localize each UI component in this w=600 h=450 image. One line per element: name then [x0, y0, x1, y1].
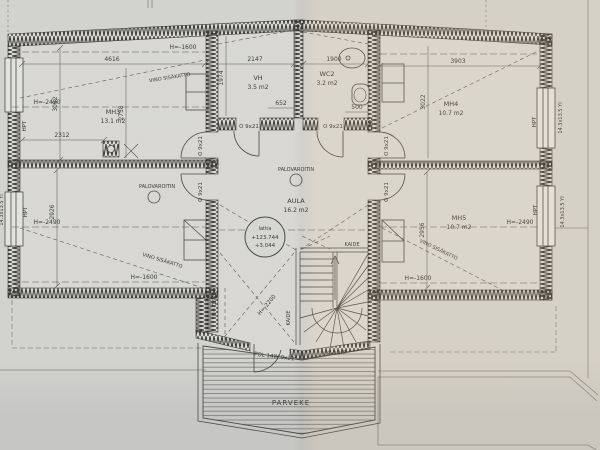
door-size-wc2: O 9x21 — [323, 124, 343, 130]
height-mh5-bottom: H=-1600 — [405, 275, 432, 282]
wc-toilet — [352, 84, 369, 105]
door-size-vh: O 9x21 — [239, 124, 259, 130]
window-spec-mh5: 14.3x13.5 YI — [560, 196, 566, 227]
window-spec-mh4: 14.3x13.5 YI — [558, 102, 564, 133]
note-hpt-mh5: HPT — [533, 204, 539, 215]
plan-floor-area — [8, 20, 552, 360]
height-mh3-top: H=-1600 — [170, 44, 197, 51]
room-area-mh4: 10.7 m2 — [439, 110, 464, 117]
window-lower-left — [5, 192, 23, 246]
floor-plan-svg: lattia +123.744 +3.044 MH3 13.1 m2 VH 3.… — [0, 0, 600, 450]
room-area-mh5: 10.7 m2 — [447, 224, 472, 231]
dim-mh5-depth: 2956 — [419, 222, 426, 237]
dim-mh4-depth: 3022 — [420, 94, 427, 109]
note-hpt-lower-left: HPT — [23, 206, 29, 217]
room-label-aula: AULA — [287, 197, 305, 205]
height-lower-left: H=-2490 — [34, 219, 61, 226]
height-landing: H=-1620 — [212, 291, 218, 316]
dim-lower-left-depth: 2926 — [49, 204, 56, 219]
room-label-wc2: WC2 — [319, 70, 334, 78]
door-size-lower-left: O 9x21 — [198, 182, 204, 202]
note-railing-top: KAIDE — [344, 242, 359, 248]
note-smoke-aula: PALOVAROITIN — [278, 167, 315, 173]
room-area-aula: 16.2 m2 — [284, 207, 309, 214]
wc-sink — [339, 48, 365, 68]
height-mh3: H=-2490 — [34, 99, 61, 106]
window-mh5 — [537, 186, 555, 246]
level-marker: lattia +123.744 +3.044 — [245, 217, 285, 257]
dim-mh3-diag: 2758 — [118, 105, 125, 120]
room-label-vh: VH — [253, 74, 262, 82]
scanned-floor-plan-photo: lattia +123.744 +3.044 MH3 13.1 m2 VH 3.… — [0, 0, 600, 450]
window-mh4 — [537, 88, 555, 148]
dim-wc2-offset: 500 — [351, 104, 363, 111]
room-area-wc2: 3.2 m2 — [316, 80, 337, 87]
dim-vh-depth: 1974 — [218, 70, 225, 85]
door-size-mh5: O 9x21 — [384, 182, 390, 202]
dim-mh4-width: 3903 — [450, 58, 465, 65]
room-label-mh4: MH4 — [444, 100, 459, 108]
note-smoke-lower-left: PALOVAROITIN — [139, 184, 176, 190]
room-label-parveke: PARVEKE — [272, 399, 310, 407]
window-spec-left: 14.3x13.5 YI — [0, 194, 5, 225]
height-mh5: H=-2490 — [507, 219, 534, 226]
note-hpt-mh4: HPT — [532, 116, 538, 127]
room-area-vh: 3.5 m2 — [247, 84, 268, 91]
door-size-mh4: O 9x21 — [384, 136, 390, 156]
dim-vh-offset: 652 — [275, 100, 287, 107]
dim-mh3-part: 2312 — [54, 132, 69, 139]
room-label-mh5: MH5 — [452, 214, 467, 222]
window-mh3 — [5, 58, 23, 112]
door-size-mh3: O 9x21 — [198, 136, 204, 156]
level-marker-relative: +3.044 — [255, 243, 276, 249]
level-marker-elevation: +123.744 — [251, 235, 279, 241]
dim-vh-width: 2147 — [247, 56, 262, 63]
dim-wc2-width: 1900 — [326, 56, 341, 63]
note-hpt-mh3: HPT — [22, 120, 28, 131]
height-lower-left-bottom: H=-1600 — [131, 274, 158, 281]
dim-mh3-width: 4616 — [104, 56, 119, 63]
level-marker-label: lattia — [259, 226, 272, 232]
note-railing-side: KAIDE — [286, 310, 292, 325]
